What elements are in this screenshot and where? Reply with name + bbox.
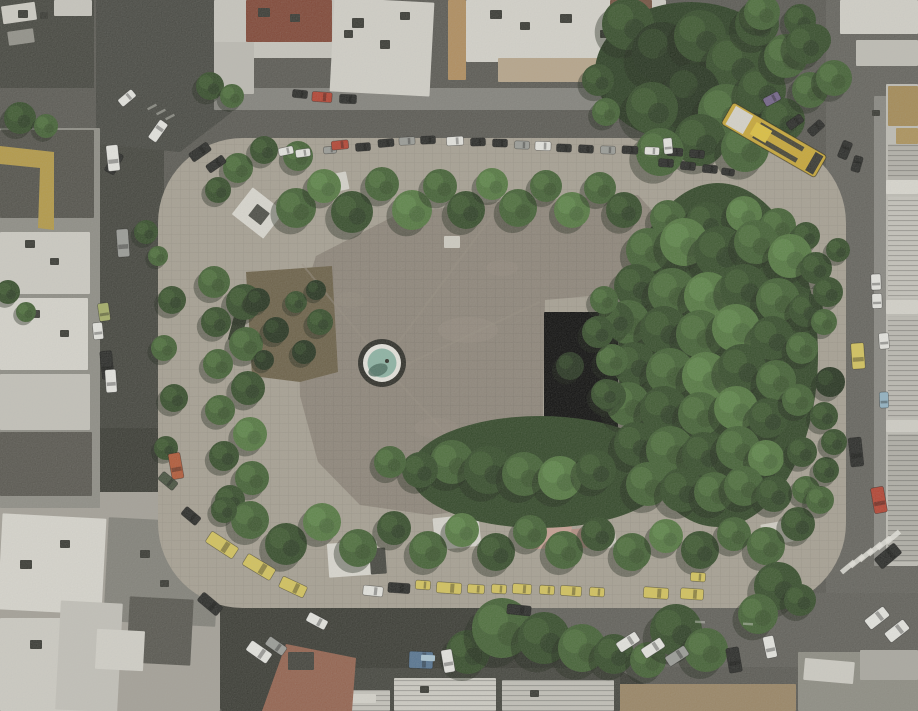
aerial-satellite-image [0, 0, 918, 711]
satellite-map-view [0, 0, 918, 711]
photo-grain-overlay [0, 0, 918, 711]
